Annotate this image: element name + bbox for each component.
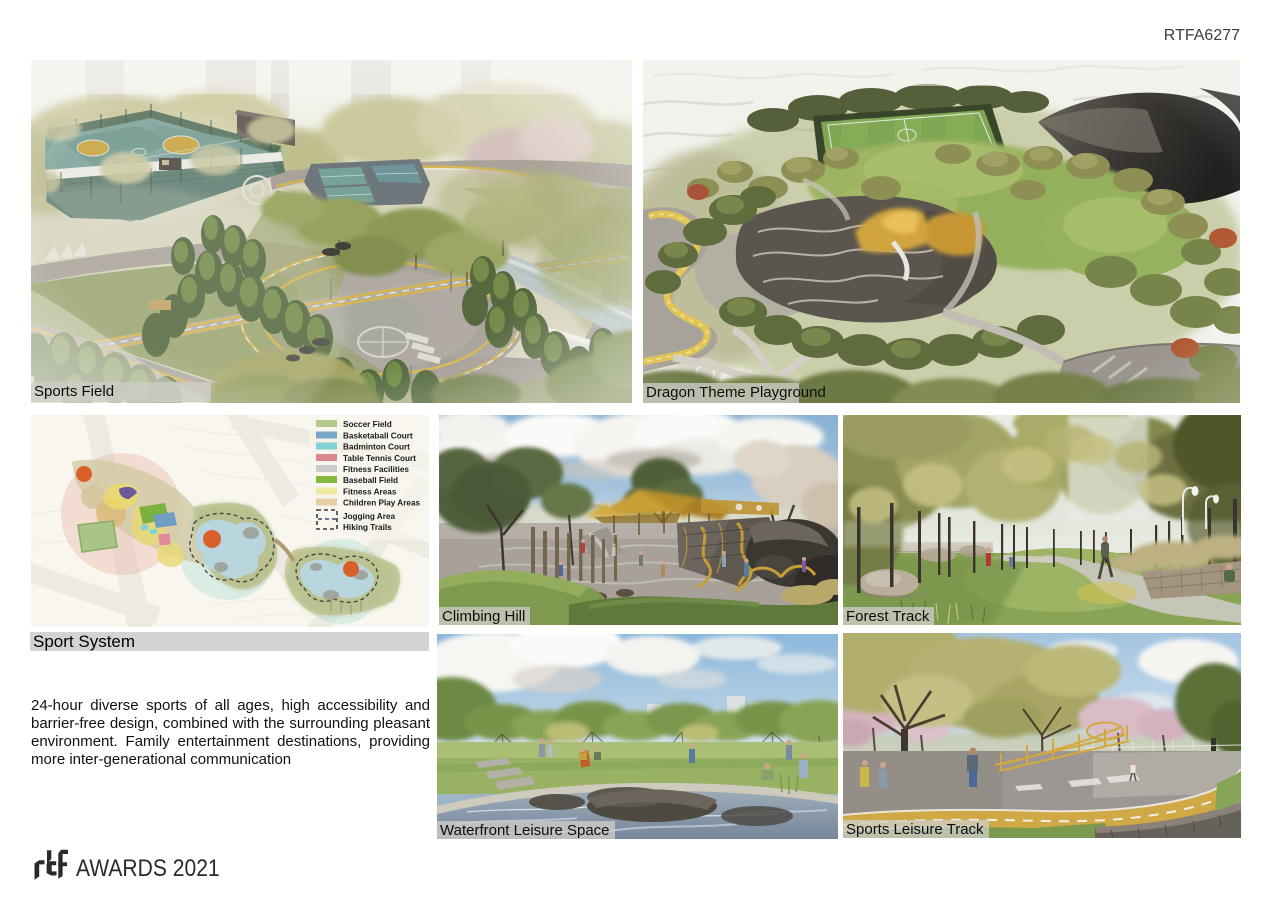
svg-text:Jogging Area: Jogging Area xyxy=(343,512,395,521)
svg-text:Table Tennis Court: Table Tennis Court xyxy=(343,454,416,463)
svg-text:Soccer Field: Soccer Field xyxy=(343,420,392,429)
svg-text:Fitness Facilities: Fitness Facilities xyxy=(343,465,409,474)
svg-text:Badminton Court: Badminton Court xyxy=(343,443,410,452)
svg-text:Hiking Trails: Hiking Trails xyxy=(343,523,392,532)
svg-text:Baseball Field: Baseball Field xyxy=(343,476,398,485)
svg-text:Basketaball Court: Basketaball Court xyxy=(343,432,413,441)
svg-text:Fitness Areas: Fitness Areas xyxy=(343,488,397,497)
svg-text:Children Play Areas: Children Play Areas xyxy=(343,499,420,508)
